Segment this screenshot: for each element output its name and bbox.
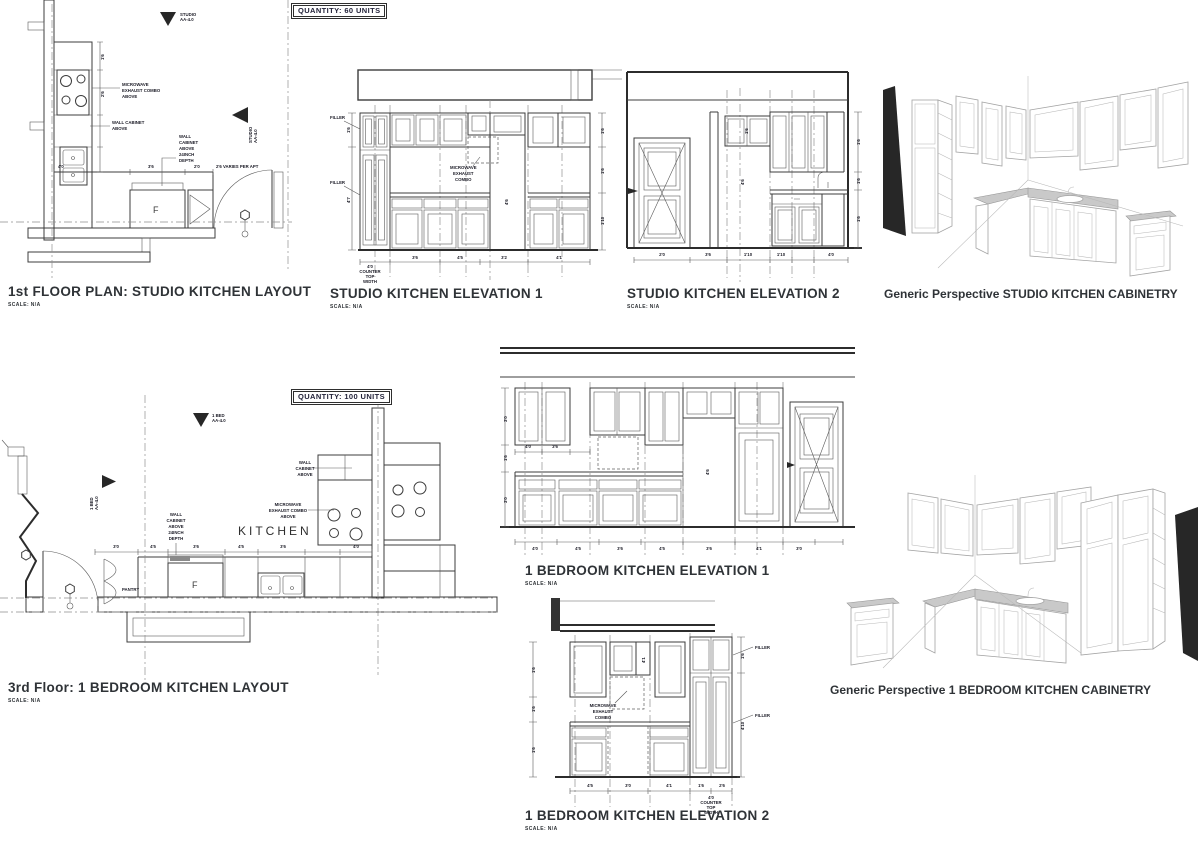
note-line: EXHAUST bbox=[593, 709, 614, 714]
dim-chain-counter: 3'0 4'5 3'6 4'5 3'6 4'0 bbox=[95, 544, 372, 555]
note-line: MICROWAVE bbox=[275, 502, 302, 507]
note-line: ABOVE bbox=[280, 514, 295, 519]
note-line: MICROWAVE bbox=[450, 165, 477, 170]
dim-label: WIDTH bbox=[363, 279, 377, 284]
marker-label: AA-4.0 bbox=[180, 17, 194, 22]
dim-label: 1'10 bbox=[744, 252, 753, 257]
dim-label: 4'1 bbox=[666, 783, 672, 788]
scale-label: SCALE: N/A bbox=[525, 581, 558, 587]
door bbox=[628, 138, 690, 248]
fridge-space: 4'6 bbox=[683, 418, 735, 527]
note-line: MICROWAVE bbox=[590, 703, 617, 708]
filler-label: FILLER bbox=[330, 115, 346, 120]
pantry-cabinet bbox=[690, 637, 732, 777]
title-studio-plan: 1st FLOOR PLAN: STUDIO KITCHEN LAYOUT bbox=[8, 284, 311, 299]
sink-symbol bbox=[1057, 196, 1083, 203]
title-1bed-elevation2: 1 BEDROOM KITCHEN ELEVATION 2 bbox=[525, 808, 769, 823]
left-dim-chain: 1'6 4'7 bbox=[346, 113, 356, 250]
studio-elevation2-drawing: 4'6 1'6 1'6 1'6 1'6 2'0 3'6 1'10 1'10 4'… bbox=[622, 60, 874, 298]
dim-label: 4'0 bbox=[525, 444, 531, 449]
note-line: COMBO bbox=[455, 177, 472, 182]
dim-label: 4'1 bbox=[641, 657, 646, 663]
scale-label: SCALE: N/A bbox=[330, 304, 363, 310]
tall-pantry-cabinets bbox=[1081, 489, 1165, 655]
microwave-zone bbox=[468, 137, 498, 163]
note-line: DEPTH bbox=[169, 536, 184, 541]
note-line: 24INCH bbox=[179, 152, 194, 157]
studio-perspective-drawing bbox=[878, 58, 1200, 288]
upper-cabinets bbox=[725, 112, 844, 172]
dim-label: 4'1 bbox=[556, 255, 562, 260]
note-line: CABINET bbox=[295, 466, 314, 471]
note-line: EXHAUST COMBO bbox=[122, 88, 161, 93]
dim-label: 3'6 bbox=[193, 544, 199, 549]
note-line: ABOVE bbox=[122, 94, 137, 99]
dim-label: 1'6 bbox=[856, 178, 861, 184]
note-line: MICROWAVE bbox=[122, 82, 149, 87]
scale-label: SCALE: N/A bbox=[627, 304, 660, 310]
wall-wedge bbox=[883, 86, 906, 236]
dim-label: 1'6 bbox=[856, 139, 861, 145]
dim-label: 4'6 bbox=[504, 199, 509, 205]
dim-label: 4'0 bbox=[828, 252, 834, 257]
dim-label: 4'5 bbox=[575, 546, 581, 551]
dim-label: 3'0 bbox=[625, 783, 631, 788]
title-studio-elevation1: STUDIO KITCHEN ELEVATION 1 bbox=[330, 286, 543, 301]
note-line: DEPTH bbox=[179, 158, 194, 163]
note-line: WALL bbox=[170, 512, 183, 517]
dim-label: 1'6 bbox=[744, 128, 749, 134]
tall-cabinet bbox=[735, 388, 783, 527]
elevation-marker-icon: STUDIO AA-4.0 bbox=[232, 107, 258, 143]
fridge-label: F bbox=[192, 580, 198, 590]
stove-right-mirror bbox=[384, 443, 455, 597]
filler-label: FILLER bbox=[755, 713, 771, 718]
note-wall-cabinet: WALL CABINET ABOVE bbox=[295, 460, 352, 477]
note-wall-cabinet: WALL CABINET ABOVE bbox=[90, 120, 145, 131]
dim-label: 3'0 bbox=[113, 544, 119, 549]
dim-label: 3'6 bbox=[148, 164, 154, 169]
right-dim-chain: 1'6 4'10 bbox=[737, 637, 745, 777]
note-microwave: MICROWAVE EXHAUST COMBO ABOVE bbox=[269, 502, 334, 519]
fridge-label: F bbox=[153, 205, 159, 215]
studio-plan-drawing: 4'0 3'6 2'0 2'6 VARIES PER APT 1'6 2'6 M… bbox=[0, 0, 312, 284]
quantity-box-1bed: QUANTITY: 100 UNITS bbox=[291, 389, 392, 405]
dim-label: 3'6 bbox=[552, 444, 558, 449]
dim-label: 1'6 bbox=[531, 667, 536, 673]
plan-counter-run bbox=[138, 555, 372, 597]
quantity-label: QUANTITY: 100 UNITS bbox=[293, 391, 390, 403]
title-1bed-perspective: Generic Perspective 1 BEDROOM KITCHEN CA… bbox=[830, 683, 1151, 697]
fridge-space: 4'6 bbox=[490, 135, 525, 250]
wall-return bbox=[710, 112, 718, 248]
kitchen-label: KITCHEN bbox=[238, 524, 312, 538]
note-wall-cabinet-depth: WALL CABINET ABOVE 24INCH DEPTH bbox=[162, 134, 198, 186]
wall-break-line bbox=[20, 494, 38, 598]
dim-label: 2'6 bbox=[719, 783, 725, 788]
dim-label: 4'0 bbox=[532, 546, 538, 551]
note-line: CABINET bbox=[166, 518, 185, 523]
marker-label: AA-4.0 bbox=[253, 129, 258, 143]
base-cabinets bbox=[570, 722, 690, 777]
left-dim-chain: 1'6 1'6 1'6 bbox=[529, 642, 537, 777]
note-line: ABOVE bbox=[112, 126, 127, 131]
dim-label: 1'6 bbox=[600, 128, 605, 134]
dim-label: 1'6 bbox=[100, 54, 105, 60]
dim-label: 4'10 bbox=[740, 721, 745, 730]
bed-elevation1-drawing: 4'6 3'0 1'6 3'0 4'0 3'6 4'0 4'5 3'6 4'5 bbox=[495, 340, 860, 572]
dim-label: 1'6 bbox=[346, 127, 351, 133]
note-wall-cabinet-depth: WALL CABINET ABOVE 24INCH DEPTH bbox=[166, 512, 185, 555]
base-cabinets bbox=[515, 472, 683, 527]
dim-label: 1'6 bbox=[856, 216, 861, 222]
dim-label: 3'2 bbox=[501, 255, 507, 260]
gridlines bbox=[575, 633, 732, 807]
note-line: EXHAUST COMBO bbox=[269, 508, 308, 513]
dim-label: 3'0 bbox=[503, 416, 508, 422]
title-1bed-elevation1: 1 BEDROOM KITCHEN ELEVATION 1 bbox=[525, 563, 769, 578]
island-vanity-cabinet bbox=[847, 598, 899, 665]
dim-label: 1'6 bbox=[503, 455, 508, 461]
note-line: ABOVE bbox=[179, 146, 194, 151]
drawing-sheet: 4'0 3'6 2'0 2'6 VARIES PER APT 1'6 2'6 M… bbox=[0, 0, 1200, 850]
soffit-band bbox=[500, 348, 855, 353]
filler-label: FILLER bbox=[755, 645, 771, 650]
right-dim-chain: 1'6 1'6 1'6 bbox=[854, 112, 862, 248]
door-wedge bbox=[1175, 507, 1198, 661]
door-tag bbox=[241, 210, 250, 237]
right-wall-upper-cabinets bbox=[1030, 82, 1188, 170]
dim-label: 4'6 bbox=[705, 469, 710, 475]
soffit-band bbox=[358, 70, 622, 100]
stove-left bbox=[318, 455, 372, 545]
island-vanity-cabinet bbox=[1126, 211, 1176, 276]
dim-label: 1'10 bbox=[600, 216, 605, 225]
right-dim-chain: 1'6 1'6 1'10 bbox=[598, 113, 606, 250]
sink-symbol bbox=[258, 573, 304, 597]
filler-label: FILLER bbox=[330, 180, 346, 185]
title-studio-elevation2: STUDIO KITCHEN ELEVATION 2 bbox=[627, 286, 840, 301]
note-microwave: MICROWAVE EXHAUST COMBO bbox=[590, 691, 627, 720]
dim-label: 3'0 bbox=[796, 546, 802, 551]
note-line: CABINET bbox=[179, 140, 198, 145]
tall-cabinet bbox=[912, 100, 952, 233]
bottom-dim-chain: 4'0 4'5 3'6 4'5 3'6 4'1 3'0 bbox=[515, 539, 843, 551]
note-microwave: MICROWAVE EXHAUST COMBO bbox=[450, 157, 480, 182]
elevation-marker-icon: 1 BED AA-4.0 bbox=[89, 475, 116, 510]
upper-cabinets: 4'1 bbox=[570, 642, 685, 709]
dim-label: 4'7 bbox=[346, 197, 351, 203]
faucet-symbol bbox=[818, 172, 830, 188]
note-line: WALL bbox=[299, 460, 312, 465]
title-1bed-plan: 3rd Floor: 1 BEDROOM KITCHEN LAYOUT bbox=[8, 680, 289, 695]
dim-label: 4'1 bbox=[756, 546, 762, 551]
dim-label: 1'6 bbox=[698, 783, 704, 788]
door-swing-arrow bbox=[787, 462, 795, 468]
bed-elevation2-drawing: 4'1 FILLER FILLER MICROWAVE EXHAUST COMB… bbox=[515, 595, 782, 813]
left-wall-upper-cabinets bbox=[956, 96, 1026, 166]
note-line: WALL CABINET bbox=[112, 120, 145, 125]
dim-label: 2'0 bbox=[194, 164, 200, 169]
soffit-band bbox=[551, 598, 715, 631]
bed-plan-drawing: PANTRY 3'0 4'5 3'6 4'5 3'6 4'0 F KITCHEN bbox=[0, 385, 497, 685]
sink-symbol bbox=[60, 147, 87, 185]
left-wall-upper-cabinets bbox=[908, 493, 973, 556]
dim-label: 1'6 bbox=[740, 653, 745, 659]
dim-label: 3'6 bbox=[617, 546, 623, 551]
dim-label: 4'0 bbox=[353, 544, 359, 549]
faucet-symbol bbox=[1028, 588, 1034, 596]
dim-label: 4'0 bbox=[58, 164, 64, 169]
marker-label: AA-4.0 bbox=[94, 496, 99, 510]
filler-labels: FILLER FILLER bbox=[330, 115, 360, 195]
note-line: ABOVE bbox=[297, 472, 312, 477]
dim-label: 3'0 bbox=[503, 497, 508, 503]
dim-label: 4'6 bbox=[740, 179, 745, 185]
wall-outline bbox=[627, 72, 848, 248]
dim-label: 3'6 bbox=[280, 544, 286, 549]
dim-label: 1'10 bbox=[777, 252, 786, 257]
dim-label: 3'6 bbox=[706, 546, 712, 551]
studio-elevation1-drawing: 4'6 FILLER FILLER MICROWAVE EXHAUST COMB… bbox=[330, 55, 622, 293]
dim-label: 4'5 bbox=[457, 255, 463, 260]
base-cabinets bbox=[976, 199, 1116, 263]
bottom-dim-chain: 2'0 3'6 1'10 1'10 4'0 bbox=[634, 252, 848, 263]
note-line: ABOVE bbox=[168, 524, 183, 529]
bottom-dim-chain: 4'0 COUNTER TOP WIDTH 3'6 4'5 3'2 4'1 bbox=[359, 255, 590, 284]
door-tag bbox=[22, 550, 75, 609]
dim-label: 2'6 VARIES PER APT bbox=[216, 164, 259, 169]
pantry-label: PANTRY bbox=[122, 587, 139, 592]
dim-label: 4'5 bbox=[238, 544, 244, 549]
plan-dimensions: 4'0 3'6 2'0 2'6 VARIES PER APT 1'6 2'6 bbox=[54, 42, 259, 175]
dim-label: 3'6 bbox=[412, 255, 418, 260]
dim-label: 2'6 bbox=[100, 91, 105, 97]
dim-label: 1'6 bbox=[531, 706, 536, 712]
note-line: 24INCH bbox=[168, 530, 183, 535]
quantity-box-studio: QUANTITY: 60 UNITS bbox=[291, 3, 387, 19]
dim-label: 1'6 bbox=[531, 747, 536, 753]
microwave-zone bbox=[598, 437, 638, 469]
scale-label: SCALE: N/A bbox=[8, 698, 41, 704]
dim-label: 1'6 bbox=[600, 168, 605, 174]
note-line: COMBO bbox=[595, 715, 612, 720]
upper-dim-labels: 4'0 3'6 bbox=[515, 444, 590, 455]
dim-label: 4'5 bbox=[587, 783, 593, 788]
dim-label: 3'6 bbox=[705, 252, 711, 257]
dim-label: 4'5 bbox=[150, 544, 156, 549]
upper-cabinets bbox=[515, 388, 735, 469]
filler-labels: FILLER FILLER bbox=[733, 645, 771, 723]
note-line: EXHAUST bbox=[453, 171, 474, 176]
bed-perspective-drawing bbox=[823, 453, 1200, 688]
dim-label: 2'0 bbox=[659, 252, 665, 257]
title-studio-perspective: Generic Perspective STUDIO KITCHEN CABIN… bbox=[884, 287, 1178, 301]
elevation-marker-icon: 1 BED AA-4.0 bbox=[193, 413, 226, 427]
elevation-marker-icon: STUDIO AA-4.0 bbox=[160, 12, 197, 26]
sink-base bbox=[770, 172, 848, 246]
scale-label: SCALE: N/A bbox=[8, 302, 41, 308]
door-swing-arrow bbox=[628, 188, 638, 194]
marker-label: AA-4.0 bbox=[212, 418, 226, 423]
scale-label: SCALE: N/A bbox=[525, 826, 558, 832]
left-dim-chain: 3'0 1'6 3'0 bbox=[501, 388, 509, 527]
quantity-label: QUANTITY: 60 UNITS bbox=[293, 5, 385, 17]
sink-symbol bbox=[1016, 598, 1044, 605]
right-wall-upper-cabinets bbox=[977, 487, 1091, 564]
note-line: WALL bbox=[179, 134, 192, 139]
gridlines bbox=[525, 382, 783, 555]
dim-label: 4'5 bbox=[659, 546, 665, 551]
